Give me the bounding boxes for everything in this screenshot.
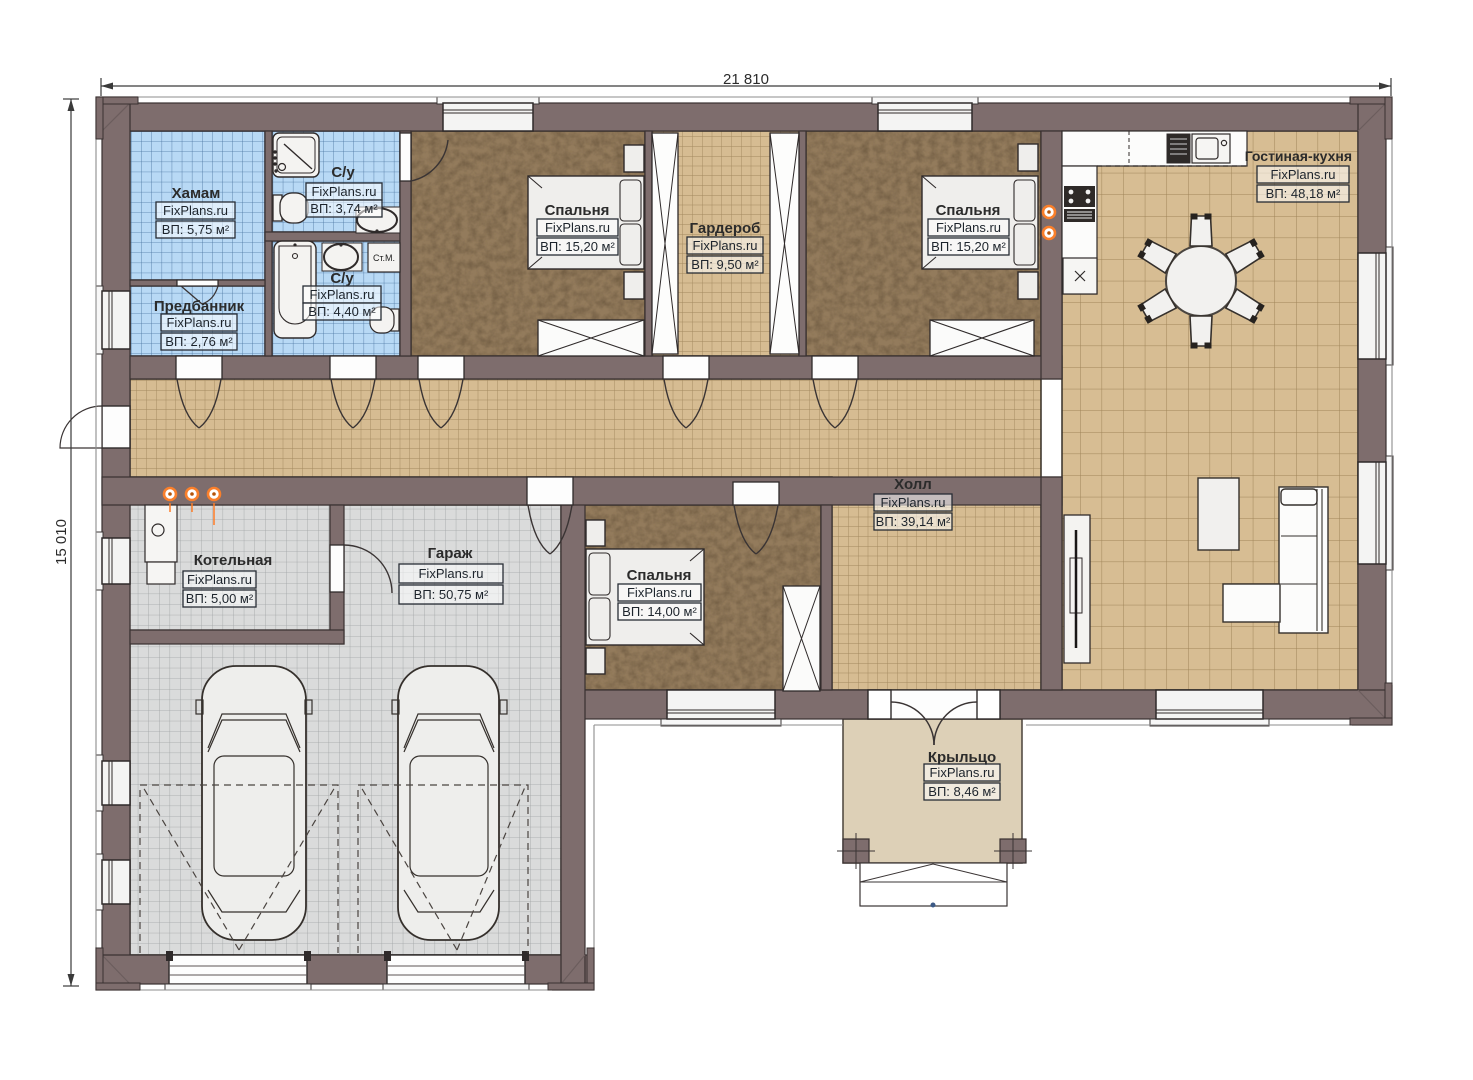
svg-text:ВП: 5,75 м²: ВП: 5,75 м² bbox=[162, 222, 230, 237]
svg-text:FixPlans.ru: FixPlans.ru bbox=[166, 315, 231, 330]
svg-text:Хамам: Хамам bbox=[172, 185, 221, 202]
svg-text:Гараж: Гараж bbox=[428, 545, 473, 562]
svg-text:FixPlans.ru: FixPlans.ru bbox=[936, 220, 1001, 235]
svg-text:ВП: 3,74 м²: ВП: 3,74 м² bbox=[310, 201, 378, 216]
svg-text:FixPlans.ru: FixPlans.ru bbox=[187, 572, 252, 587]
svg-text:Котельная: Котельная bbox=[194, 552, 273, 569]
svg-text:ВП: 2,76 м²: ВП: 2,76 м² bbox=[165, 334, 233, 349]
svg-text:ВП: 4,40 м²: ВП: 4,40 м² bbox=[308, 304, 376, 319]
svg-text:21 810: 21 810 bbox=[723, 71, 769, 88]
svg-text:FixPlans.ru: FixPlans.ru bbox=[163, 203, 228, 218]
svg-text:Предбанник: Предбанник bbox=[154, 298, 245, 315]
svg-text:FixPlans.ru: FixPlans.ru bbox=[309, 287, 374, 302]
svg-text:FixPlans.ru: FixPlans.ru bbox=[929, 765, 994, 780]
svg-text:Спальня: Спальня bbox=[627, 567, 692, 584]
svg-text:ВП: 14,00 м²: ВП: 14,00 м² bbox=[622, 604, 697, 619]
svg-text:С/у: С/у bbox=[330, 270, 354, 287]
svg-text:FixPlans.ru: FixPlans.ru bbox=[545, 220, 610, 235]
svg-text:Ст.М.: Ст.М. bbox=[373, 253, 395, 263]
svg-text:Холл: Холл bbox=[894, 476, 932, 493]
svg-text:Спальня: Спальня bbox=[936, 202, 1001, 219]
svg-text:15 010: 15 010 bbox=[53, 519, 70, 565]
svg-text:Гостиная-кухня: Гостиная-кухня bbox=[1245, 148, 1352, 164]
svg-text:С/у: С/у bbox=[331, 164, 355, 181]
svg-text:FixPlans.ru: FixPlans.ru bbox=[418, 566, 483, 581]
svg-text:Гардероб: Гардероб bbox=[690, 220, 761, 237]
svg-text:ВП: 48,18 м²: ВП: 48,18 м² bbox=[1266, 186, 1341, 201]
svg-text:ВП: 9,50 м²: ВП: 9,50 м² bbox=[691, 257, 759, 272]
svg-text:ВП: 39,14 м²: ВП: 39,14 м² bbox=[876, 514, 951, 529]
svg-text:FixPlans.ru: FixPlans.ru bbox=[311, 184, 376, 199]
svg-text:ВП: 8,46 м²: ВП: 8,46 м² bbox=[928, 784, 996, 799]
svg-text:FixPlans.ru: FixPlans.ru bbox=[1270, 167, 1335, 182]
svg-text:Спальня: Спальня bbox=[545, 202, 610, 219]
svg-text:FixPlans.ru: FixPlans.ru bbox=[880, 495, 945, 510]
svg-text:FixPlans.ru: FixPlans.ru bbox=[692, 238, 757, 253]
svg-text:FixPlans.ru: FixPlans.ru bbox=[627, 585, 692, 600]
svg-text:ВП: 15,20 м²: ВП: 15,20 м² bbox=[540, 239, 615, 254]
svg-text:ВП: 50,75 м²: ВП: 50,75 м² bbox=[414, 587, 489, 602]
svg-text:ВП: 15,20 м²: ВП: 15,20 м² bbox=[931, 239, 1006, 254]
svg-text:ВП: 5,00 м²: ВП: 5,00 м² bbox=[186, 591, 254, 606]
